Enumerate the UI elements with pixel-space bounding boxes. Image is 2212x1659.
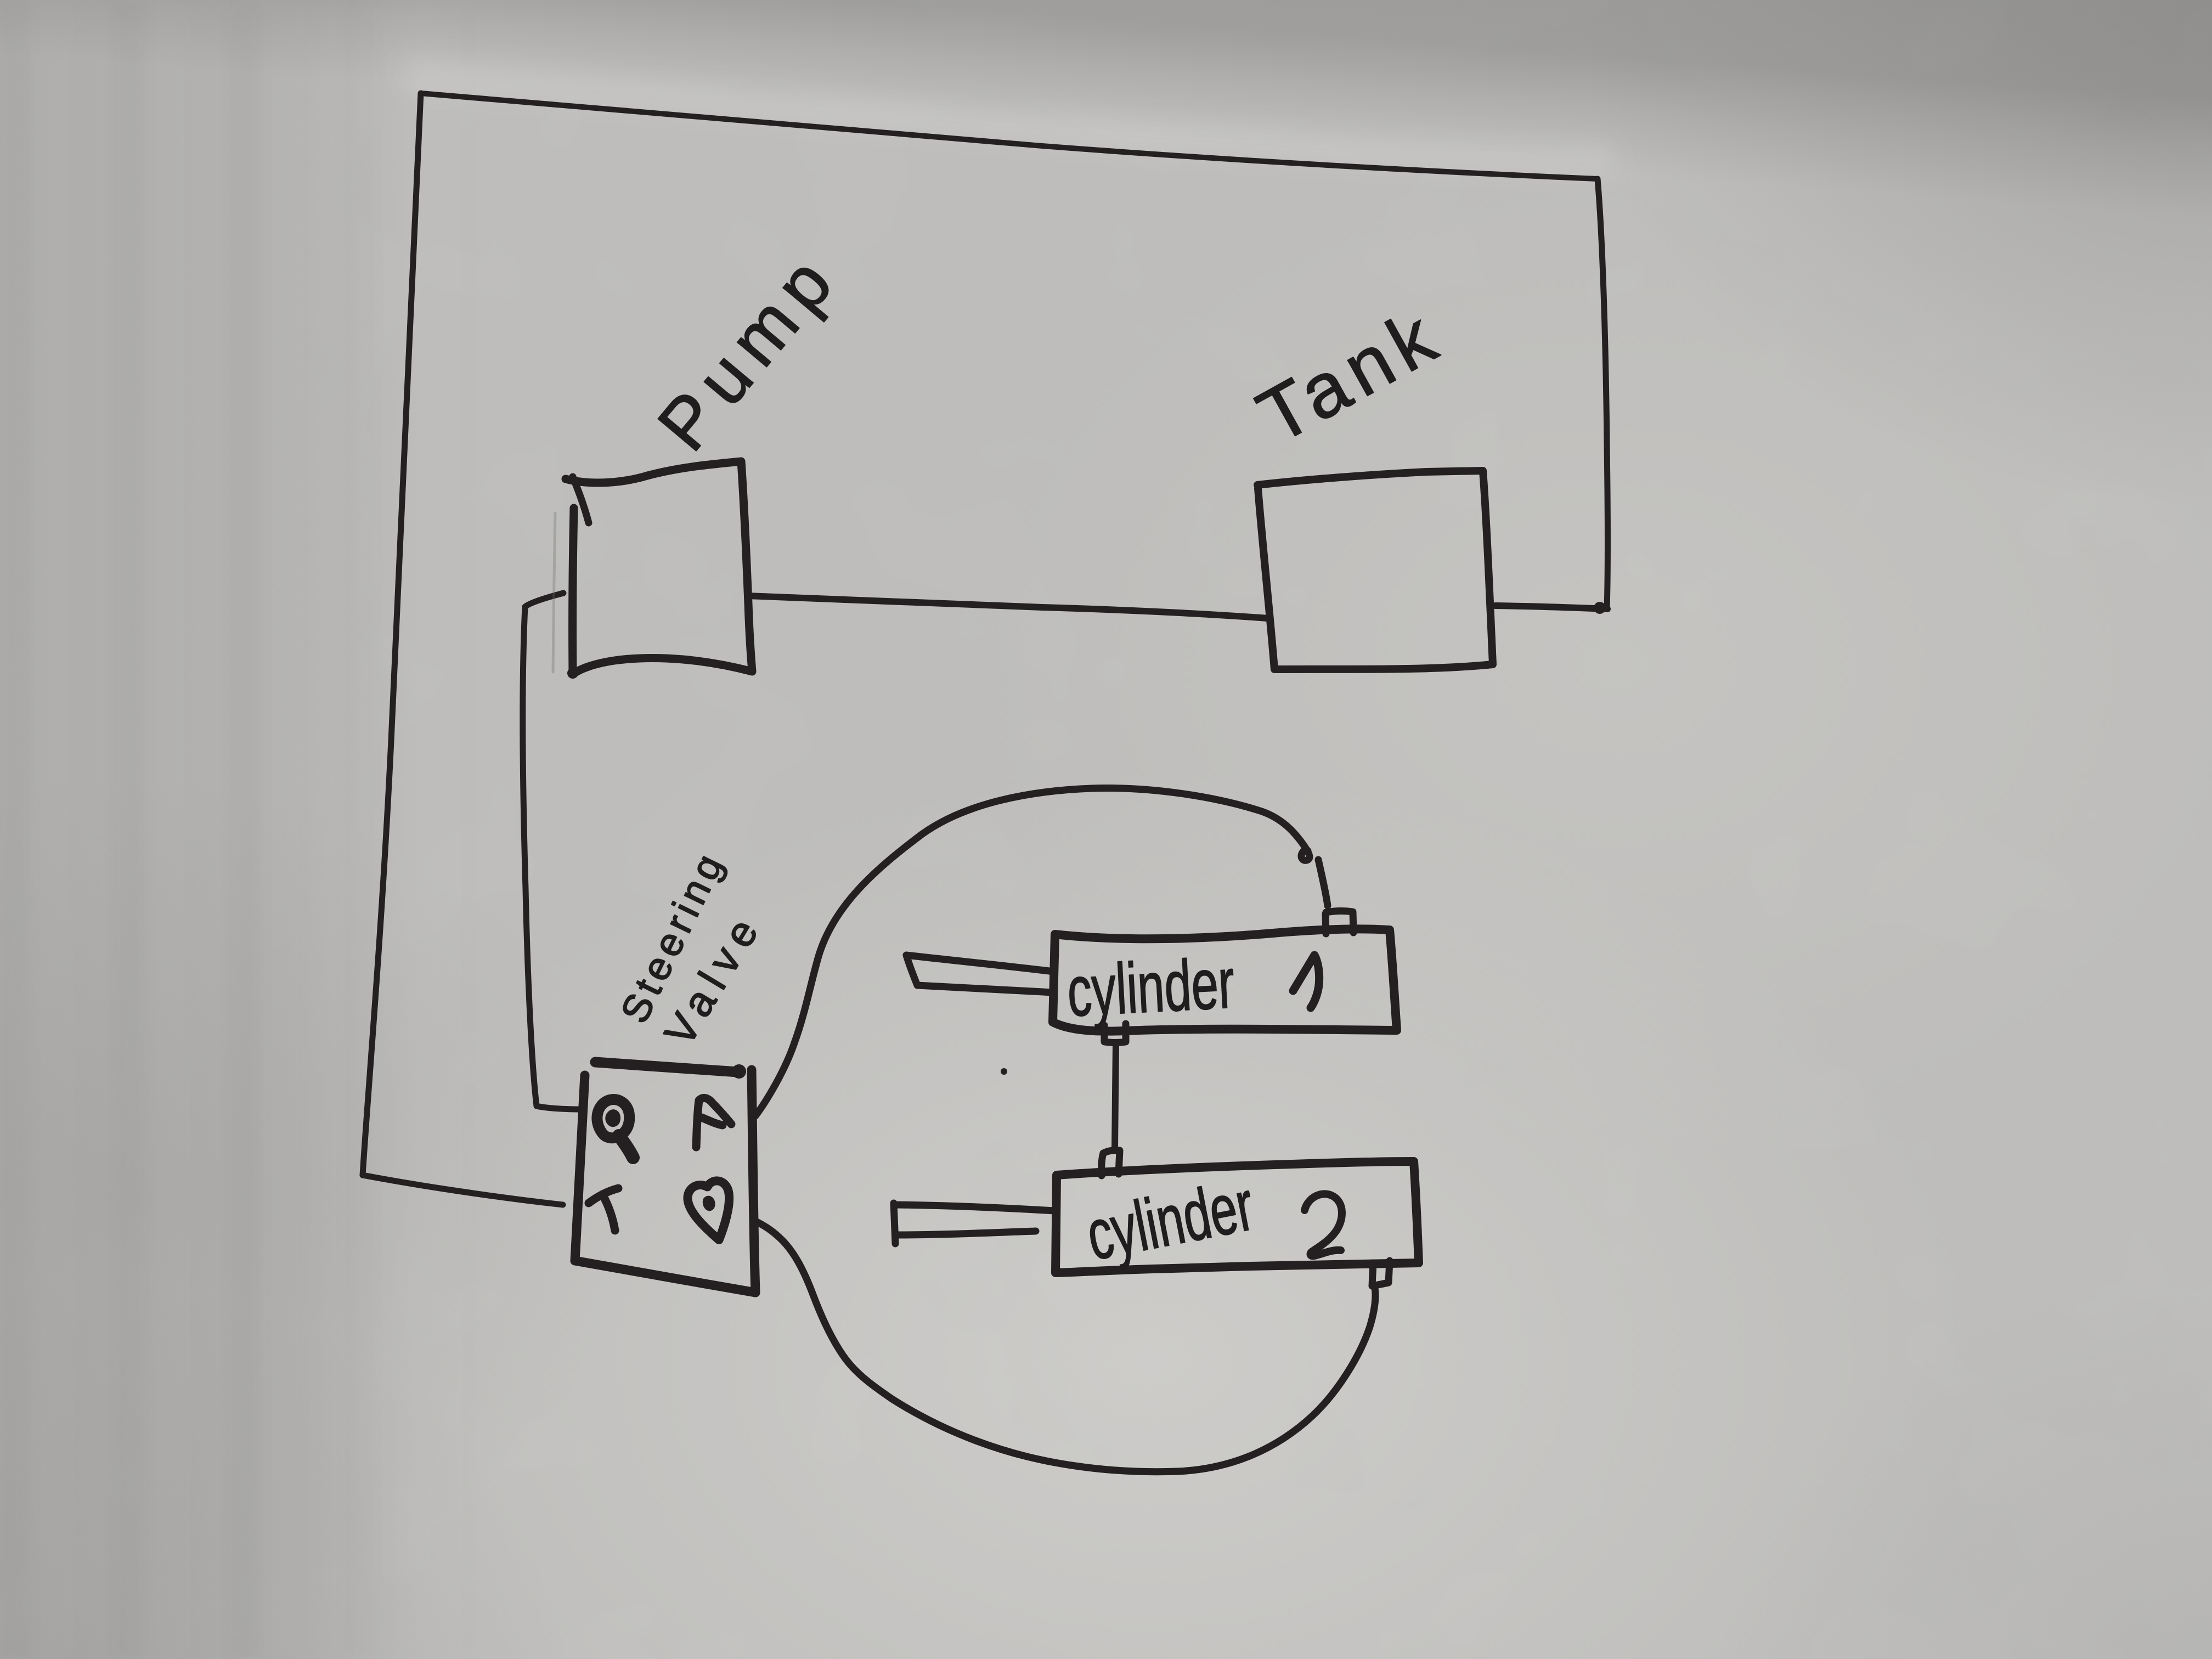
- svg-text:cylinder: cylinder: [1065, 943, 1237, 1031]
